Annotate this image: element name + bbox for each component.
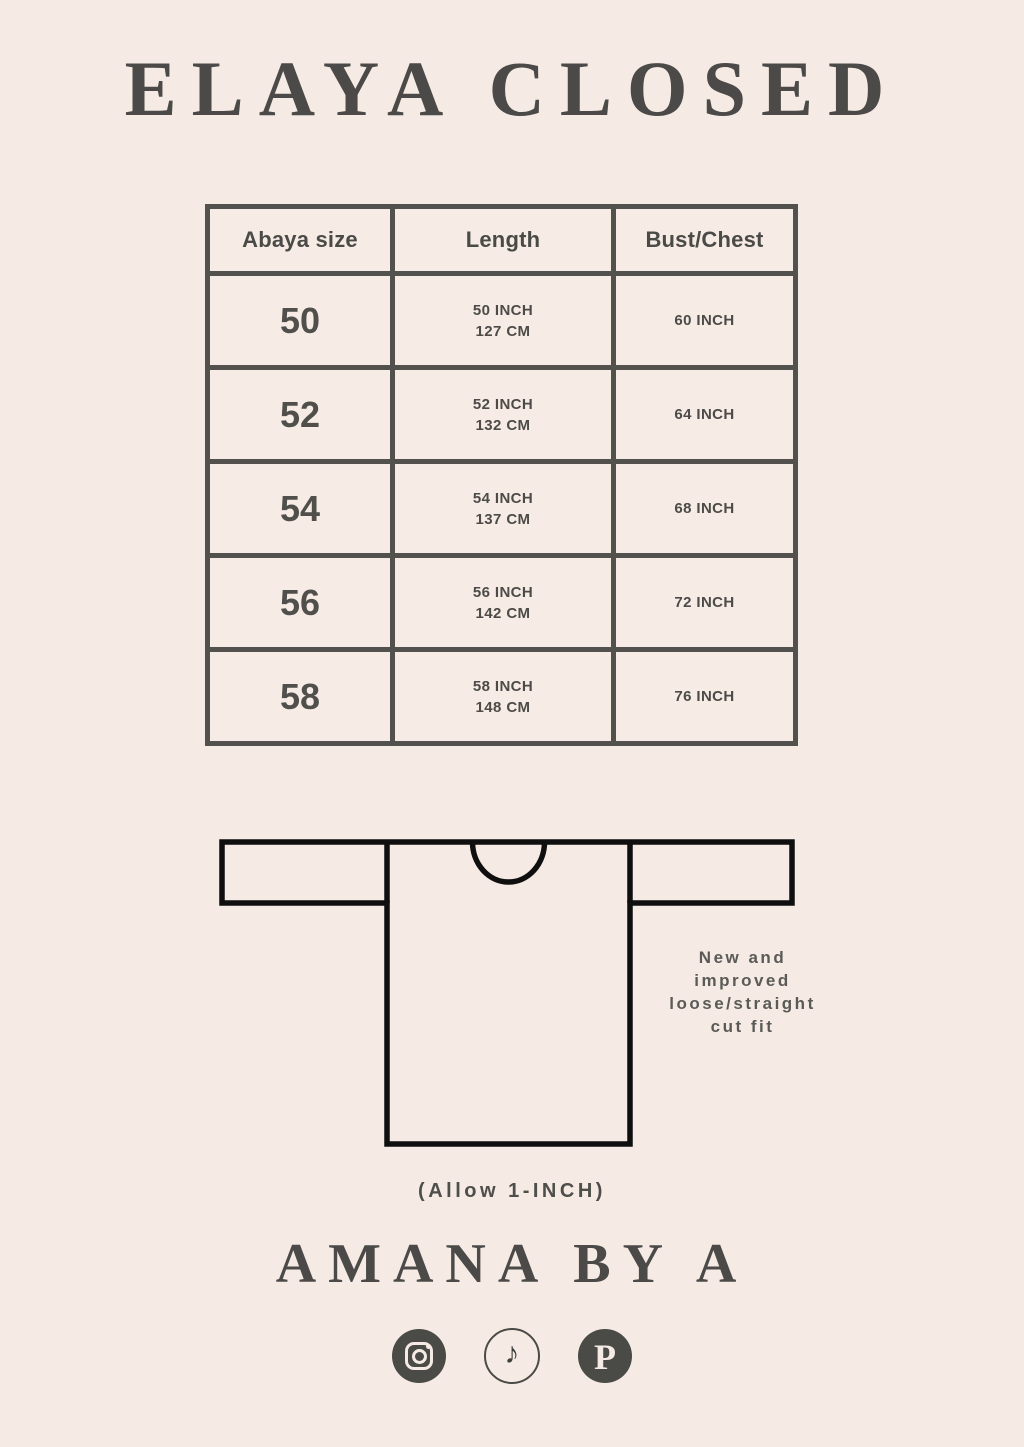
brand-title: AMANA BY A — [0, 1232, 1024, 1296]
bust-cell: 76 INCH — [614, 650, 796, 744]
bust-cell: 64 INCH — [614, 368, 796, 462]
abaya-size-cell: 52 — [208, 368, 393, 462]
size-table-body: 50 50 INCH 127 CM 60 INCH 52 52 INCH 132… — [208, 274, 796, 744]
instagram-icon[interactable] — [392, 1329, 446, 1383]
table-row: 56 56 INCH 142 CM 72 INCH — [208, 556, 796, 650]
length-inch-value: 58 INCH — [395, 676, 611, 697]
length-cell: 56 INCH 142 CM — [393, 556, 614, 650]
fit-note: New and improved loose/straight cut fit — [630, 946, 855, 1038]
table-row: 52 52 INCH 132 CM 64 INCH — [208, 368, 796, 462]
length-cm-value: 142 CM — [395, 603, 611, 624]
abaya-size-cell: 54 — [208, 462, 393, 556]
length-inch-value: 56 INCH — [395, 582, 611, 603]
table-row: 58 58 INCH 148 CM 76 INCH — [208, 650, 796, 744]
bust-cell: 72 INCH — [614, 556, 796, 650]
length-cm-value: 148 CM — [395, 697, 611, 718]
instagram-camera-lens — [412, 1349, 427, 1364]
allowance-note: (Allow 1-INCH) — [0, 1180, 1024, 1203]
tiktok-note-glyph: ♪ — [505, 1339, 520, 1369]
length-inch-value: 50 INCH — [395, 300, 611, 321]
length-cell: 52 INCH 132 CM — [393, 368, 614, 462]
length-cell: 50 INCH 127 CM — [393, 274, 614, 368]
table-row: 50 50 INCH 127 CM 60 INCH — [208, 274, 796, 368]
social-icons-row: ♪ P — [0, 1328, 1024, 1384]
length-cm-value: 132 CM — [395, 415, 611, 436]
instagram-camera-flash-dot — [426, 1344, 431, 1349]
length-cm-value: 137 CM — [395, 509, 611, 530]
length-cell: 54 INCH 137 CM — [393, 462, 614, 556]
length-cm-value: 127 CM — [395, 321, 611, 342]
bust-cell: 68 INCH — [614, 462, 796, 556]
size-table: Abaya size Length Bust/Chest 50 50 INCH … — [205, 204, 798, 746]
length-inch-value: 52 INCH — [395, 394, 611, 415]
header-length: Length — [393, 207, 614, 274]
table-header-row: Abaya size Length Bust/Chest — [208, 207, 796, 274]
table-row: 54 54 INCH 137 CM 68 INCH — [208, 462, 796, 556]
abaya-size-cell: 58 — [208, 650, 393, 744]
pinterest-p-glyph: P — [594, 1339, 616, 1375]
length-cell: 58 INCH 148 CM — [393, 650, 614, 744]
abaya-size-cell: 50 — [208, 274, 393, 368]
header-abaya-size: Abaya size — [208, 207, 393, 274]
header-bust-chest: Bust/Chest — [614, 207, 796, 274]
pinterest-icon[interactable]: P — [578, 1329, 632, 1383]
tiktok-icon[interactable]: ♪ — [484, 1328, 540, 1384]
bust-cell: 60 INCH — [614, 274, 796, 368]
page-title: ELAYA CLOSED — [0, 44, 1024, 134]
size-table-head: Abaya size Length Bust/Chest — [208, 207, 796, 274]
abaya-size-cell: 56 — [208, 556, 393, 650]
size-chart-page: ELAYA CLOSED Abaya size Length Bust/Ches… — [0, 0, 1024, 1447]
neckline-curve — [473, 842, 545, 882]
length-inch-value: 54 INCH — [395, 488, 611, 509]
